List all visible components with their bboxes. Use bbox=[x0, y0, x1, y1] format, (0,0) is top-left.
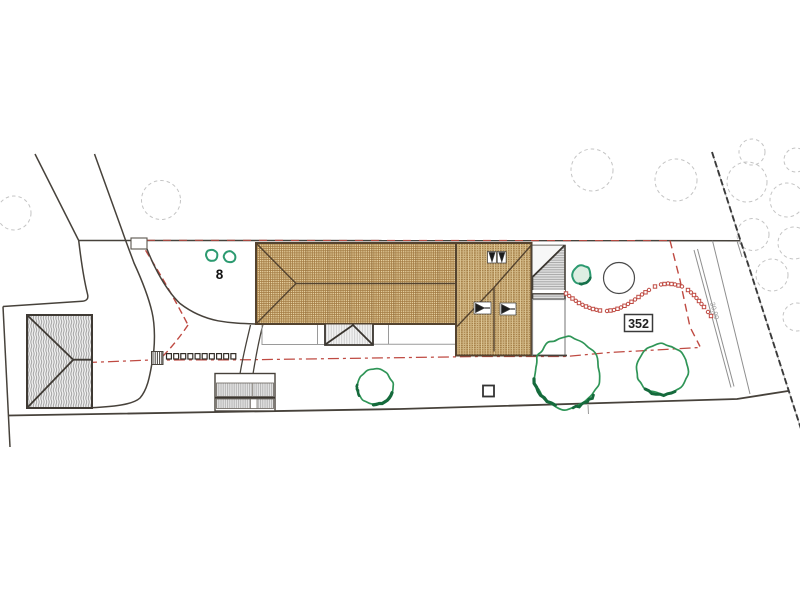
svg-text:8: 8 bbox=[216, 267, 224, 282]
svg-text:352: 352 bbox=[628, 317, 649, 331]
